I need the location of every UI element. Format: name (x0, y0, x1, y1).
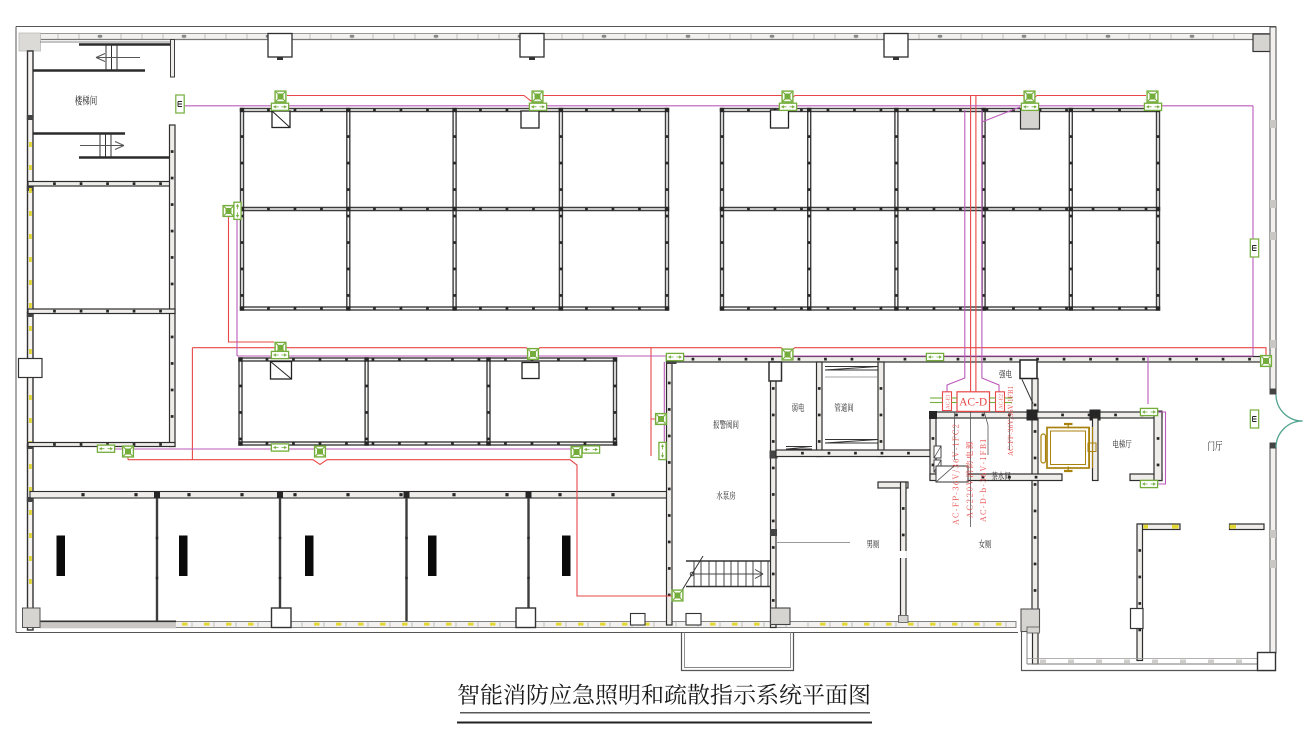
svg-text:AC-D: AC-D (959, 397, 987, 409)
